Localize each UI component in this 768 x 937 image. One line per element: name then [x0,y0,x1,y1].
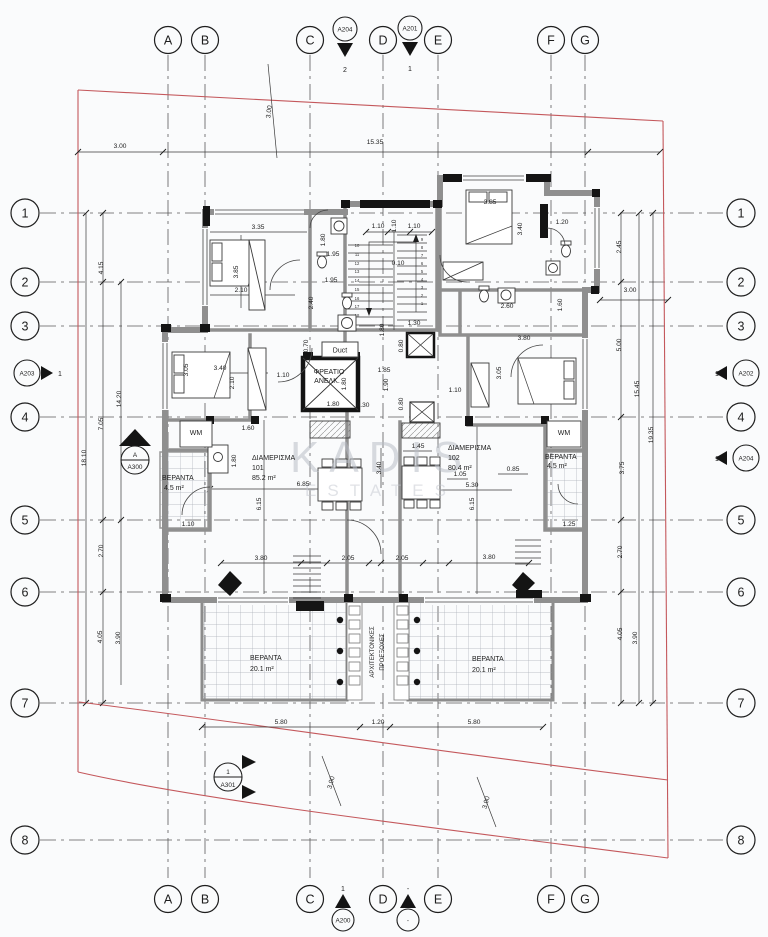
dim-label: 1.60 [557,298,564,311]
dim-label: 5.00 [616,338,623,351]
svg-text:6: 6 [22,586,29,600]
svg-text:1: 1 [58,371,62,378]
dim-label: 3.80 [483,554,496,561]
svg-text:D: D [378,893,387,907]
dim-label: 4.15 [98,261,105,274]
svg-text:11: 11 [355,252,360,257]
dim-label: 3.00 [265,105,274,119]
marker-A204-right: 1 A204 [715,445,759,471]
svg-text:A204: A204 [338,27,353,34]
dim-label: 3.00 [327,775,337,790]
svg-text:7: 7 [421,253,424,258]
grid-bubble-bottom-D: D [370,886,397,913]
svg-text:D: D [378,34,387,48]
dim-label: 3.05 [496,366,503,379]
dim-label: 1.10 [372,223,385,230]
sink [338,315,356,331]
dim-label: 0.30 [357,402,370,409]
veranda-right-area: 20.1 m² [472,667,496,674]
wardrobe [249,240,265,310]
dim-label: 1.90 [383,378,390,391]
svg-text:A: A [164,34,173,48]
svg-text:2: 2 [738,276,745,290]
balcony-railings [337,602,420,700]
apartment-101-label: ΔΙΑΜΕΡΙΣΜΑ [252,455,296,462]
svg-text:A204: A204 [739,456,754,463]
svg-text:17: 17 [355,304,360,309]
dim-label: 3.00 [114,143,127,150]
dim-label: 2.40 [308,296,315,309]
svg-text:13: 13 [355,269,360,274]
svg-text:F: F [547,34,555,48]
dim-label: 2.70 [98,544,105,557]
elevator-label2: ΑΝΕΛΚ. [314,378,340,385]
grid-bubble-left-7: 7 [11,689,39,717]
svg-text:5: 5 [22,514,29,528]
grid-bubble-left-3: 3 [11,312,39,340]
wm-right-label: WM [558,430,571,437]
dim-label: 1.30 [408,320,421,327]
dim-label: 0.70 [303,339,310,352]
grid-bubble-bottom-F: F [538,886,565,913]
grid-bubble-left-2: 2 [11,268,39,296]
grid-bubble-right-6: 6 [727,578,755,606]
wardrobe [248,348,266,410]
grid-bubble-top-F: F [538,27,565,54]
dim-label: 3.85 [233,265,240,278]
veranda-small-left-label: ΒΕΡΑΝΤΑ [162,475,194,482]
dim-label: 1.80 [320,233,327,246]
dim-label: 2.60 [501,303,514,310]
dim-label: 1.95 [327,251,340,258]
dim-label: 1.85 [378,367,391,374]
dim-label: 4.05 [97,630,104,643]
dim-label: 0.80 [398,397,405,410]
dim-label: 18.10 [81,449,88,466]
svg-text:3: 3 [738,320,745,334]
grid-bubble-right-7: 7 [727,689,755,717]
dim-label: 1.10 [391,219,398,232]
marker-A200-bottom: 1 A200 [332,886,354,931]
svg-text:2: 2 [343,67,347,74]
dim-label: 15.45 [634,380,641,397]
dim-label: 1.20 [556,219,569,226]
stair-step-numbers: 10 11 12 13 14 15 16 17 18 9 8 7 6 5 4 3… [355,237,424,318]
grid-bubble-right-5: 5 [727,506,755,534]
grid-bubble-top-G: G [572,27,599,54]
dim-label: 2.45 [616,240,623,253]
marker-A300-left: A A300 [119,429,151,474]
toilet [479,286,489,302]
svg-text:1: 1 [226,769,230,776]
dim-label: 5.80 [468,719,481,726]
grid-bubble-bottom-B: B [192,886,219,913]
marker-A204-top: A204 2 [333,17,357,74]
grid-bubble-left-8: 8 [11,826,39,854]
grid-bubble-top-C: C [297,27,324,54]
svg-text:A300: A300 [128,464,143,471]
dim-label: 14.20 [116,390,123,407]
dim-label: 1.80 [341,377,348,390]
arch-projections-label2: ΠΡΟΕΞΟΧΕΣ [380,633,386,671]
svg-text:1: 1 [408,66,412,73]
sink [331,218,347,234]
dim-label: 5.80 [275,719,288,726]
svg-text:1: 1 [738,207,745,221]
veranda-small-left-area: 4.5 m² [164,485,185,492]
dim-label: 3.40 [517,222,524,235]
svg-text:ESTATES: ESTATES [305,481,457,500]
marker-A301-bottom: 1 A301 [214,755,256,799]
wardrobe [471,363,489,407]
svg-text:A201: A201 [403,26,418,33]
elevator-label: ΦΡΕΑΤΙΟ [314,369,345,376]
grid-bubble-left-5: 5 [11,506,39,534]
svg-text:9: 9 [421,237,424,242]
dim-label: 2.05 [396,555,409,562]
dim-label: 1.95 [325,277,338,284]
grid-bubble-top-B: B [192,27,219,54]
svg-text:A301: A301 [221,782,236,789]
dim-label: 3.90 [115,631,122,644]
dim-label: 3.00 [482,795,492,810]
svg-text:8: 8 [22,834,29,848]
dim-label: 3.00 [624,287,637,294]
svg-text:4: 4 [22,411,29,425]
svg-text:B: B [201,893,209,907]
dim-label: 4.05 [617,627,624,640]
grid-bubble-bottom-E: E [425,886,452,913]
service-shafts [407,333,434,422]
dim-label: 3.40 [376,461,383,474]
marker-A203-left: A203 1 [14,360,62,386]
dim-label: 19.35 [648,426,655,443]
svg-text:G: G [580,893,590,907]
bed [172,352,230,398]
svg-text:A: A [164,893,173,907]
dim-label: 5.30 [466,482,479,489]
svg-text:A200: A200 [336,918,351,925]
dim-label: 1.05 [454,471,467,478]
arch-projections-label: ΑΡΧΙΤΕΚΤΟΝΙΚΕΣ [370,626,376,678]
grid-bubble-left-6: 6 [11,578,39,606]
veranda-right-label: ΒΕΡΑΝΤΑ [472,656,504,663]
dim-label: 0.85 [507,466,520,473]
grid-bubble-right-4: 4 [727,403,755,431]
bed [518,358,576,404]
grid-bubble-right-2: 2 [727,268,755,296]
svg-text:8: 8 [738,834,745,848]
dim-label: 3.35 [252,224,265,231]
wardrobe [443,262,483,280]
dim-label: 6.15 [256,497,263,510]
veranda-small-right-area: 4.5 m² [547,463,568,470]
svg-text:5: 5 [738,514,745,528]
svg-text:16: 16 [355,296,360,301]
toilet [561,241,571,257]
grid-bubble-top-A: A [155,27,182,54]
grid-bubble-bottom-G: G [572,886,599,913]
dim-label: 3.80 [255,555,268,562]
svg-text:5: 5 [421,269,424,274]
dim-label: 6.15 [469,497,476,510]
svg-text:A202: A202 [739,371,754,378]
apartment-101-area: 85.2 m² [252,475,276,482]
dim-label: 1.10 [182,521,195,528]
grid-bubble-bottom-A: A [155,886,182,913]
dim-label: 1.80 [231,454,238,467]
svg-text:8: 8 [421,245,424,250]
apartment-102-label: ΔΙΑΜΕΡΙΣΜΑ [448,445,492,452]
svg-text:15: 15 [355,287,360,292]
dim-label: 3.05 [183,363,190,376]
grid-bubble-left-1: 1 [11,199,39,227]
svg-text:A203: A203 [20,371,35,378]
floor-plan-page: 10 11 12 13 14 15 16 17 18 9 8 7 6 5 4 3… [0,0,768,937]
dim-label: 7.05 [98,417,105,430]
dim-label: 1.10 [408,223,421,230]
svg-text:14: 14 [355,278,360,283]
svg-text:1: 1 [341,886,345,893]
grid-bubble-top-E: E [425,27,452,54]
wm-left-label: WM [190,430,203,437]
svg-text:B: B [201,34,209,48]
svg-text:E: E [434,34,442,48]
kitchen-sink [208,445,228,473]
veranda-small-right-label: ΒΕΡΑΝΤΑ [545,454,577,461]
dim-label: 0.10 [392,260,405,267]
svg-text:10: 10 [355,243,360,248]
svg-text:1: 1 [421,301,424,306]
dim-label: 15.35 [367,139,384,146]
svg-text:1: 1 [22,207,29,221]
svg-text:6: 6 [738,586,745,600]
svg-text:-: - [407,886,410,893]
grid-bubble-right-3: 3 [727,312,755,340]
dim-label: 1.45 [412,443,425,450]
svg-text:G: G [580,34,590,48]
svg-text:E: E [434,893,442,907]
svg-text:7: 7 [738,697,745,711]
svg-text:C: C [305,893,314,907]
svg-text:12: 12 [355,261,360,266]
dim-label: 1.20 [372,719,385,726]
grid-bubble-left-4: 4 [11,403,39,431]
svg-text:6: 6 [421,261,424,266]
svg-text:2: 2 [22,276,29,290]
dim-label: 1.25 [563,521,576,528]
svg-text:C: C [305,34,314,48]
dim-label: 1.80 [379,323,386,336]
svg-text:-: - [407,918,409,925]
dim-label: 1.10 [449,387,462,394]
sink [546,261,560,275]
svg-text:F: F [547,893,555,907]
marker-A202-right: 1 A202 [715,360,759,386]
floorplan-canvas: 10 11 12 13 14 15 16 17 18 9 8 7 6 5 4 3… [0,0,768,937]
apartment-102-number: 102 [448,455,460,462]
veranda-left-area: 20.1 m² [250,666,274,673]
grid-bubble-right-1: 1 [727,199,755,227]
svg-text:4: 4 [738,411,745,425]
grid-bubble-bottom-C: C [297,886,324,913]
svg-text:7: 7 [22,697,29,711]
dim-label: 1.80 [327,401,340,408]
apartment-102-area: 80.4 m² [448,465,472,472]
dim-label: 3.85 [484,199,497,206]
toilet [342,293,352,309]
grid-bubble-top-D: D [370,27,397,54]
dim-label: 3.90 [632,631,639,644]
dim-label: 1.60 [242,425,255,432]
apartment-101-number: 101 [252,465,264,472]
dim-label: 2.10 [229,376,236,389]
dim-label: 1.10 [277,372,290,379]
dim-label: 2.70 [617,545,624,558]
dim-label: 2.05 [342,555,355,562]
toilet [317,252,327,268]
dim-label: 3.80 [518,335,531,342]
svg-text:A: A [133,452,138,459]
dim-label: 2.10 [235,287,248,294]
dim-label: 6.85 [297,481,310,488]
veranda-left-label: ΒΕΡΑΝΤΑ [250,655,282,662]
marker-A201-top: A201 1 [398,16,422,73]
dim-label: 3.75 [619,461,626,474]
svg-text:3: 3 [22,320,29,334]
sink [498,288,515,303]
marker-dash-bottom: - - [397,886,419,931]
duct-label: Duct [333,348,347,355]
dim-label: 0.80 [398,339,405,352]
dim-label: 3.40 [214,365,227,372]
grid-bubble-right-8: 8 [727,826,755,854]
